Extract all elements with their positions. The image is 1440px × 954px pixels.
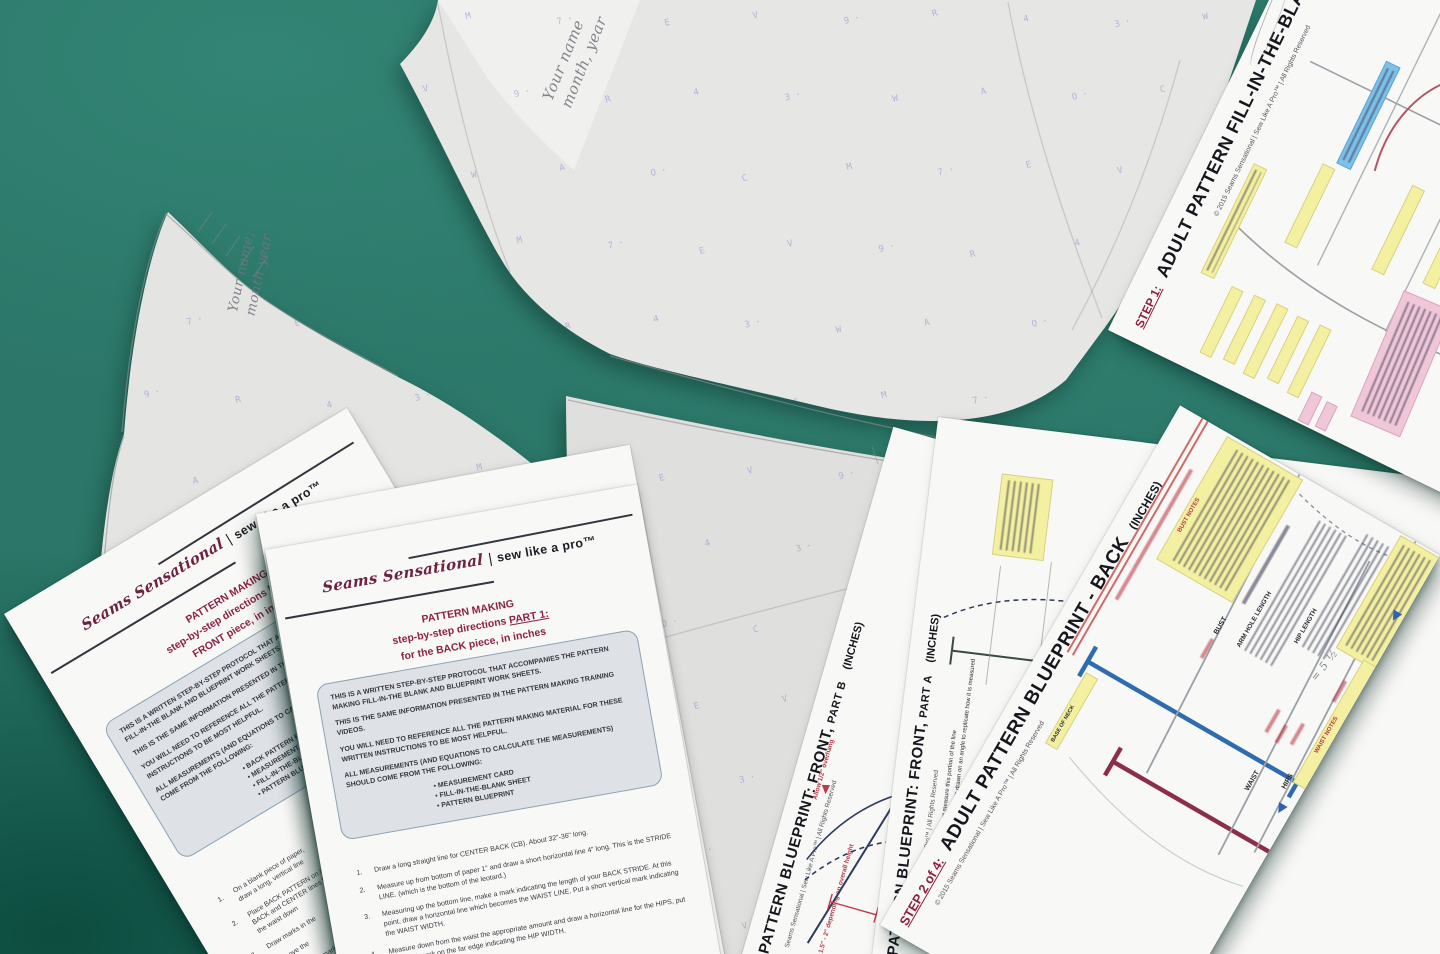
svg-text:9 ·: 9 · [108, 159, 126, 173]
svg-text:3 ·: 3 · [49, 235, 67, 249]
svg-text:V: V [1151, 394, 1159, 405]
brand-script: Seams Sensational [322, 550, 484, 596]
svg-text:C: C [47, 92, 55, 103]
svg-text:W: W [522, 394, 530, 405]
svg-text:9 ·: 9 · [473, 314, 491, 328]
svg-text:3 ·: 3 · [9, 462, 27, 476]
svg-text:A: A [610, 387, 618, 398]
svg-text:V: V [50, 852, 58, 863]
svg-text:W: W [100, 470, 108, 481]
svg-text:M: M [154, 93, 162, 104]
svg-text:R: R [200, 166, 208, 177]
svg-text:3 ·: 3 · [14, 7, 32, 21]
brand-divider: | [487, 550, 493, 566]
svg-text:W: W [140, 243, 148, 254]
steps-list: 1.Draw a long straight line for CENTER B… [356, 813, 692, 954]
photo-scene: 3 ·WAO ·CM7 ·EV9 ·R43 ·WAO ·CM7 ·EV9 ·R4… [0, 0, 1440, 954]
svg-text:E: E [334, 91, 342, 102]
svg-text:V: V [4, 173, 12, 184]
svg-text:O ·: O · [336, 235, 354, 249]
svg-text:C: C [376, 19, 384, 30]
svg-text:4: 4 [288, 159, 296, 170]
svg-text:3 ·: 3 · [379, 162, 397, 176]
svg-text:O ·: O · [701, 390, 719, 404]
yellow-note-box [992, 473, 1054, 561]
svg-text:C: C [58, 543, 66, 554]
svg-text:E: E [1063, 401, 1071, 412]
svg-text:C: C [428, 243, 436, 254]
svg-text:O ·: O · [285, 11, 303, 25]
svg-text:W: W [95, 926, 103, 937]
svg-text:V: V [55, 397, 63, 408]
svg-text:C: C [6, 319, 14, 330]
svg-text:C: C [18, 770, 26, 781]
svg-text:7 ·: 7 · [242, 83, 260, 97]
svg-text:A: A [194, 8, 202, 19]
svg-text:M: M [98, 324, 106, 335]
svg-text:3 ·: 3 · [7, 930, 25, 944]
svg-text:W: W [106, 15, 114, 26]
svg-text:V: V [382, 311, 390, 322]
